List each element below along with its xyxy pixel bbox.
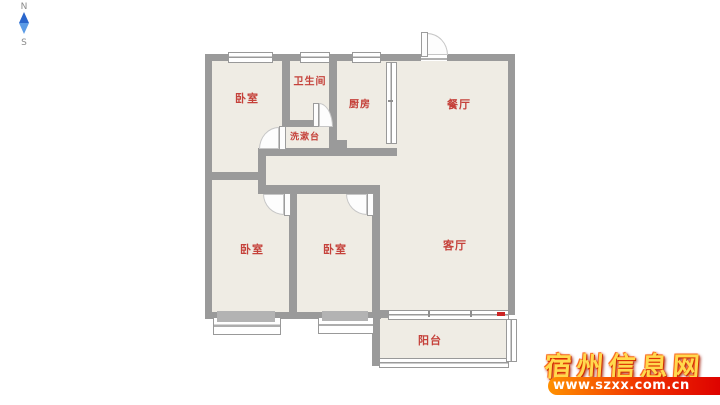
balcony-sliding-door-tick-2 (470, 311, 472, 317)
room-label-dining-room: 餐厅 (447, 96, 471, 112)
room-label-bedroom-bottom-left: 卧室 (240, 241, 264, 257)
wall-bedroom1-bathroom (282, 61, 290, 127)
room-label-washstand: 洗漱台 (290, 130, 320, 143)
bedroom-top-left-door-leaf (279, 126, 286, 150)
watermark-url-bar: www.szxx.com.cn (548, 377, 720, 395)
watermark-url-text: www.szxx.com.cn (553, 378, 690, 393)
bay-window-sill-left (217, 311, 275, 322)
compass-needle-icon (8, 12, 40, 34)
compass-south-label: S (8, 38, 40, 48)
wall-bathroom-bottom (282, 120, 315, 127)
window-bedroom-top-left (228, 52, 273, 63)
balcony-floor-area (376, 314, 509, 362)
bedroom-bottom-middle-door-leaf (367, 193, 374, 216)
kitchen-sliding-door-tick (388, 100, 393, 102)
room-label-bedroom-bottom-middle: 卧室 (323, 241, 347, 257)
room-label-kitchen: 厨房 (349, 96, 371, 111)
balcony-sliding-door-tick-1 (428, 311, 430, 317)
kitchen-sliding-door (386, 62, 397, 144)
room-label-bathroom: 卫生间 (294, 73, 327, 88)
sliding-door-red-mark (497, 312, 505, 316)
balcony-sliding-door (388, 310, 509, 320)
entrance-door-leaf (421, 32, 428, 57)
entrance-threshold (421, 58, 447, 60)
watermark-site-name: 宿州信息网 (544, 345, 706, 377)
wall-corridor-bottom (258, 185, 380, 194)
room-label-balcony: 阳台 (418, 332, 442, 348)
compass: N S (8, 2, 40, 48)
bathroom-door-leaf (313, 103, 319, 127)
wall-right (508, 54, 515, 315)
compass-north-label: N (8, 2, 40, 12)
bedroom-bottom-left-door-leaf (284, 193, 291, 216)
wall-kitchen-pier (337, 140, 347, 149)
bay-window-sill-middle (322, 311, 368, 321)
balcony-bottom-window (379, 358, 509, 368)
wall-bathroom-kitchen (329, 61, 337, 156)
wall-left-bedrooms-divider (205, 172, 266, 180)
window-kitchen (352, 52, 381, 63)
entrance-door-swing-arc (427, 33, 448, 55)
wall-left (205, 54, 212, 319)
room-label-living-room: 客厅 (443, 237, 467, 253)
balcony-right-window (506, 319, 517, 362)
room-label-bedroom-top-left: 卧室 (235, 90, 259, 106)
window-bathroom (300, 52, 330, 63)
